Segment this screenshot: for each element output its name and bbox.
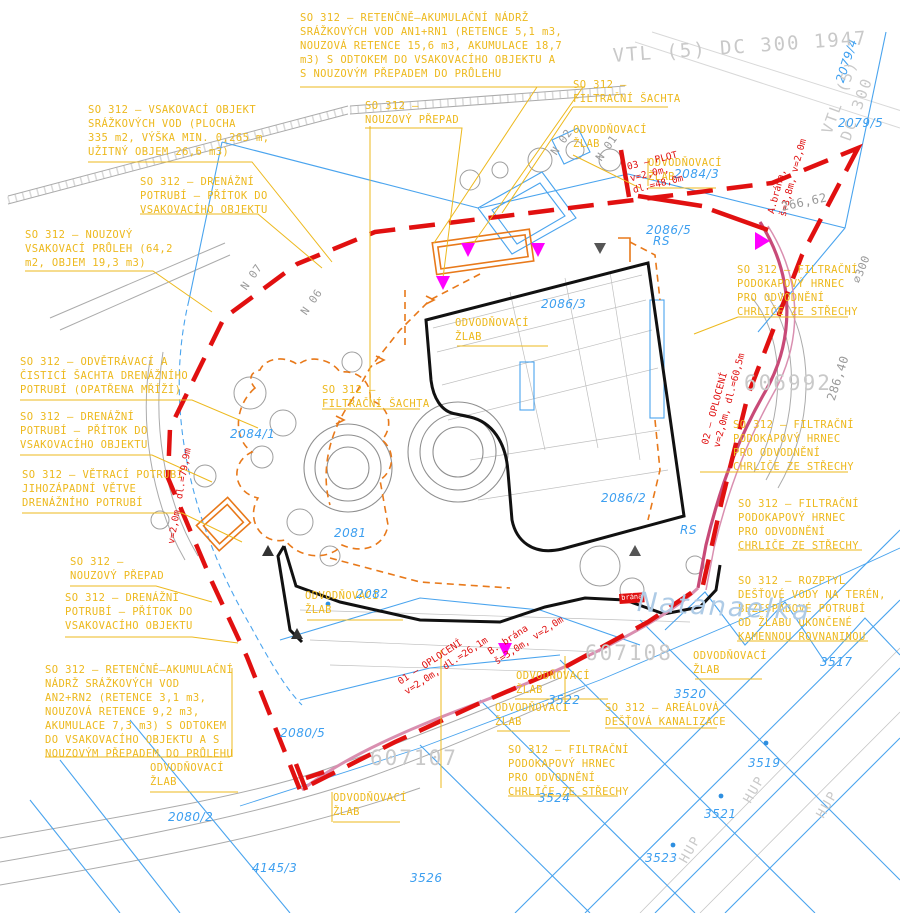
annotation-p3521: 3521 (704, 807, 737, 823)
annotation-p2084-1: 2084/1 (230, 427, 275, 443)
annotation-p2082: 2082 (356, 587, 389, 603)
annotation-an2: SO 312 – RETENČNĚ–AKUMULAČNÍ NÁDRŽ SRÁŽK… (45, 664, 233, 762)
annotation-drenazni-1: SO 312 – DRENÁŽNÍ POTRUBÍ – PŘÍTOK DO VS… (140, 176, 268, 218)
annotation-pt-606992: 606992 (744, 370, 832, 398)
annotation-hup-2: HUP (676, 832, 706, 866)
annotation-hup-3: HUP (813, 787, 843, 821)
annotation-street-name: Natanaelka (636, 585, 811, 630)
annotation-hrnec-1: SO 312 – FILTRAČNÍ PODOKAPOVÝ HRNEC PRO … (737, 264, 858, 320)
annotation-an1: SO 312 – RETENČNĚ–AKUMULAČNÍ NÁDRŽ SRÁŽK… (300, 12, 562, 82)
annotation-hrnec-2: SO 312 – FILTRAČNÍ PODOKAPOVÝ HRNEC PRO … (733, 419, 854, 475)
annotation-p2086-2: 2086/2 (601, 491, 646, 507)
annotation-p3520: 3520 (674, 687, 707, 703)
annotation-rs-2: RS (680, 523, 697, 539)
annotation-n06: N 06 (298, 287, 326, 319)
annotation-vtl-line: VTL (5) DC 300 1947 (612, 26, 868, 69)
annotation-p3524: 3524 (538, 791, 571, 807)
annotation-p3519: 3519 (748, 756, 781, 772)
annotation-layer: SO 312 – RETENČNĚ–AKUMULAČNÍ NÁDRŽ SRÁŽK… (0, 0, 900, 913)
annotation-oploceni-01: 01 – OPLOCENÍ v=2,0m, dl.=26,1m (396, 625, 490, 698)
annotation-pt-607108: 607108 (585, 640, 673, 668)
annotation-p2080-2: 2080/2 (168, 810, 213, 826)
annotation-nouzovy-prepad-left: SO 312 – NOUZOVÝ PŘEPAD (70, 556, 164, 584)
annotation-plot-03: 03 – PLOT v=2,0m, dl.=48,0m (626, 150, 685, 197)
annotation-zlab-bottom-left: ODVODŇOVACÍ ŽLAB (150, 762, 224, 790)
annotation-arealova-kanalizace: SO 312 – AREÁLOVÁ DEŠŤOVÁ KANALIZACE (605, 702, 726, 730)
annotation-p4145-3: 4145/3 (252, 861, 297, 877)
annotation-zlab-bottom-left2: ODVODŇOVACÍ ŽLAB (333, 792, 407, 820)
site-plan-canvas: SO 312 – RETENČNĚ–AKUMULAČNÍ NÁDRŽ SRÁŽK… (0, 0, 900, 913)
annotation-rs-1: RS (653, 234, 670, 250)
annotation-vetraci-potrubi: SO 312 – VĚTRACÍ POTRUBÍ JIHOZÁPADNÍ VĚT… (22, 469, 183, 511)
annotation-drenazni-2: SO 312 – DRENÁŽNÍ POTRUBÍ – PŘÍTOK DO VS… (20, 411, 148, 453)
annotation-drenazni-3: SO 312 – DRENÁŽNÍ POTRUBÍ – PŘÍTOK DO VS… (65, 592, 193, 634)
annotation-p3523: 3523 (645, 851, 678, 867)
annotation-pt-607107: 607107 (370, 745, 458, 773)
annotation-p2080-5: 2080/5 (280, 726, 325, 742)
annotation-nouzovy-pruleh: SO 312 – NOUZOVÝ VSAKOVACÍ PRŮLEH (64,2 … (25, 229, 173, 271)
annotation-vsak-objekt: SO 312 – VSAKOVACÍ OBJEKT SRÁŽKOVÝCH VOD… (88, 104, 269, 160)
annotation-hup-1: HUP (740, 772, 770, 806)
annotation-p3517: 3517 (820, 655, 853, 671)
annotation-p2086-3: 2086/3 (541, 297, 586, 313)
annotation-nouzovy-prepad-top: SO 312 – NOUZOVÝ PŘEPAD (365, 100, 459, 128)
annotation-zlab-right: ODVODŇOVACÍ ŽLAB (693, 650, 767, 678)
annotation-hrnec-3: SO 312 – FILTRAČNÍ PODOKAPOVÝ HRNEC PRO … (738, 498, 859, 554)
annotation-zlab-center: ODVODŇOVACÍ ŽLAB (455, 317, 529, 345)
annotation-filtracni-sachta-top: SO 312 – FILTRAČNÍ ŠACHTA (573, 79, 681, 107)
annotation-brana-b: B. brána š=3,0m, v=2,0m (486, 604, 566, 668)
annotation-filtracni-sachta-mid: SO 312 – FILTRAČNÍ ŠACHTA (322, 384, 430, 412)
annotation-p2081: 2081 (334, 526, 367, 542)
annotation-p3526: 3526 (410, 871, 443, 887)
annotation-pipe-300: ⌀300 (850, 254, 874, 286)
annotation-n07: N 07 (238, 262, 266, 294)
annotation-p3522: 3522 (548, 693, 581, 709)
annotation-odvetravaci-sachta: SO 312 – ODVĚTRÁVACÍ A ČISTICÍ ŠACHTA DR… (20, 356, 188, 398)
